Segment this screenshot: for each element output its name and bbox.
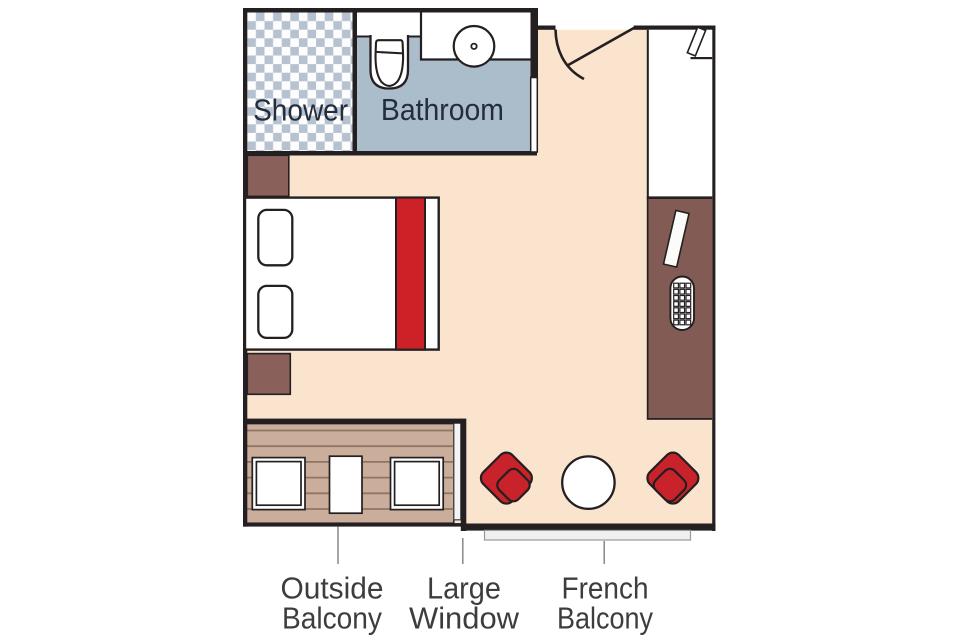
svg-text:Bathroom: Bathroom [381,92,504,127]
svg-text:Shower: Shower [253,92,348,127]
svg-text:Balcony: Balcony [282,601,382,636]
svg-text:Balcony: Balcony [557,601,653,636]
svg-text:Window: Window [409,601,520,636]
